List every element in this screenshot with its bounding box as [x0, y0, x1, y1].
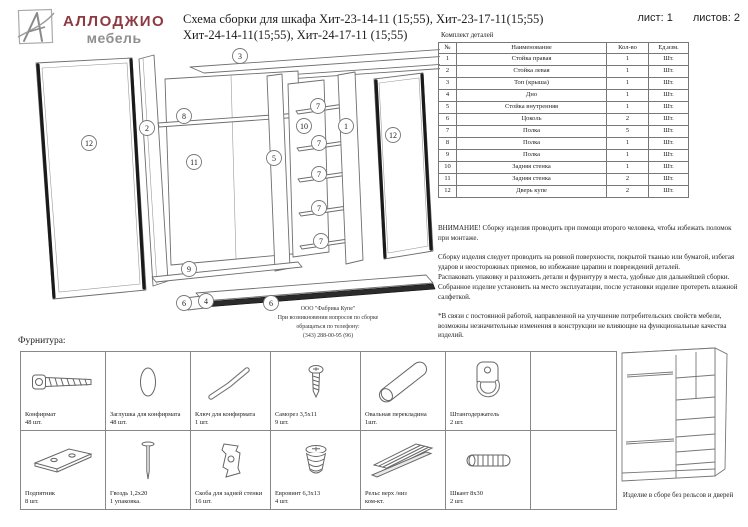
hardware-item-qty: 1 упаковка. [110, 498, 141, 505]
table-row: 5Стойка внутренняя1Шт. [439, 102, 689, 114]
hardware-item-label: Евровинт 6,3х13 [275, 490, 358, 497]
table-row: 10Задняя стенка1Шт. [439, 162, 689, 174]
column-header-number: № [439, 43, 457, 54]
svg-text:10: 10 [300, 122, 308, 131]
hardware-item-qty: 1 шт. [195, 419, 209, 426]
part-number: 5 [439, 102, 457, 114]
svg-text:9: 9 [187, 265, 191, 274]
part-qty: 1 [607, 138, 649, 150]
part-number: 1 [439, 54, 457, 66]
hardware-item-label: Заглушка для конфирмата [110, 411, 188, 418]
column-header-unit: Ед.изм. [649, 43, 689, 54]
parts-table-title: Комплект деталей [441, 32, 493, 39]
svg-text:2: 2 [145, 124, 149, 133]
sheet-info: лист: 1 листов: 2 [637, 12, 740, 24]
part-callout-11: 11 [187, 155, 202, 170]
exploded-diagram: 3122811951077777112646 [10, 40, 440, 340]
part-qty: 1 [607, 66, 649, 78]
confirmat-cap-icon [106, 357, 190, 407]
part-callout-7: 7 [312, 167, 327, 182]
part-name: Полка [457, 138, 607, 150]
rod-holder-icon [446, 357, 530, 407]
table-row: 12Дверь купе2Шт. [439, 186, 689, 198]
column-header-qty: Кол-во [607, 43, 649, 54]
svg-text:1: 1 [344, 122, 348, 131]
part-callout-4: 4 [199, 294, 214, 309]
svg-text:11: 11 [190, 158, 198, 167]
part-qty: 1 [607, 78, 649, 90]
part-name: Стойка левая [457, 66, 607, 78]
svg-text:12: 12 [85, 139, 93, 148]
svg-text:7: 7 [317, 170, 321, 179]
dowel-icon [446, 436, 530, 486]
part-callout-9: 9 [182, 262, 197, 277]
parts-table-body: 1Стойка правая1Шт.2Стойка левая1Шт.3Топ … [439, 54, 689, 198]
part-qty: 2 [607, 174, 649, 186]
hardware-item: Евровинт 6,3х134 шт. [271, 431, 361, 510]
hardware-item-label: Скоба для задней стенки [195, 490, 268, 497]
foot-pad-icon [21, 436, 105, 486]
table-row: 7Полка5Шт. [439, 126, 689, 138]
part-name: Задняя стенка [457, 162, 607, 174]
part-callout-7: 7 [311, 99, 326, 114]
table-row: 3Топ (крыша)1Шт. [439, 78, 689, 90]
part-callout-6: 6 [177, 296, 192, 311]
hardware-item-qty: 2 шт. [450, 419, 464, 426]
part-number: 9 [439, 150, 457, 162]
part-number: 6 [439, 114, 457, 126]
assembly-notices: ВНИМАНИЕ! Сборку изделия проводить при п… [438, 224, 740, 350]
part-unit: Шт. [649, 54, 689, 66]
hardware-item-label: Конфирмат [25, 411, 103, 418]
part-callout-7: 7 [312, 201, 327, 216]
svg-text:8: 8 [182, 112, 186, 121]
svg-text:12: 12 [389, 131, 397, 140]
hardware-item-qty: 1шт. [365, 419, 377, 426]
hardware-item: Скоба для задней стенки16 шт. [191, 431, 271, 510]
euro-screw-icon [271, 436, 360, 486]
table-row: 1Стойка правая1Шт. [439, 54, 689, 66]
hardware-item: Конфирмат48 шт. [21, 352, 106, 431]
rail-icon [361, 436, 445, 486]
part-name: Дно [457, 90, 607, 102]
part-name: Полка [457, 126, 607, 138]
svg-text:3: 3 [238, 52, 242, 61]
svg-text:5: 5 [272, 154, 276, 163]
part-callout-7: 7 [312, 136, 327, 151]
svg-text:6: 6 [182, 299, 186, 308]
hardware-item-label: Саморез 3,5х11 [275, 411, 358, 418]
small-screw-icon [271, 357, 360, 407]
part-callout-1: 1 [339, 119, 354, 134]
nail-icon [106, 436, 190, 486]
part-qty: 1 [607, 90, 649, 102]
hardware-item: Гвоздь 1,2х201 упаковка. [106, 431, 191, 510]
hardware-grid: Конфирмат48 шт.Заглушка для конфирмата48… [20, 351, 617, 510]
hardware-item-label: Ключ для конфирмата [195, 411, 268, 418]
hardware-item-label: Овальная перекладина [365, 411, 443, 418]
hardware-item-qty: 8 шт. [25, 498, 39, 505]
part-number: 3 [439, 78, 457, 90]
hardware-item: Шкант 8х302 шт. [446, 431, 531, 510]
part-name: Топ (крыша) [457, 78, 607, 90]
part-number: 11 [439, 174, 457, 186]
part-callout-10: 10 [297, 119, 312, 134]
part-name: Задняя стенка [457, 174, 607, 186]
part-number: 4 [439, 90, 457, 102]
hardware-section-title: Фурнитура: [18, 336, 66, 346]
part-qty: 1 [607, 150, 649, 162]
table-row: 8Полка1Шт. [439, 138, 689, 150]
hardware-item: Рельс верх /низком-кт. [361, 431, 446, 510]
part-callout-2: 2 [140, 121, 155, 136]
part-unit: Шт. [649, 90, 689, 102]
part-callout-5: 5 [267, 151, 282, 166]
part-name: Полка [457, 150, 607, 162]
hardware-item-qty: 2 шт. [450, 498, 464, 505]
svg-text:4: 4 [204, 297, 208, 306]
hardware-empty-cell [531, 431, 617, 510]
part-name: Цоколь [457, 114, 607, 126]
part-unit: Шт. [649, 66, 689, 78]
manufacturer-contact: ООО "Фабрика Купе" При возникновении воп… [238, 305, 418, 340]
hardware-item-qty: ком-кт. [365, 498, 384, 505]
hardware-item-qty: 4 шт. [275, 498, 289, 505]
hardware-item-label: Гвоздь 1,2х20 [110, 490, 188, 497]
hardware-item: Овальная перекладина1шт. [361, 352, 446, 431]
part-number: 2 [439, 66, 457, 78]
hardware-item-label: Подпятник [25, 490, 103, 497]
table-row: 2Стойка левая1Шт. [439, 66, 689, 78]
column-header-name: Наименование [457, 43, 607, 54]
parts-table-header: № Наименование Кол-во Ед.изм. [439, 43, 689, 54]
part-unit: Шт. [649, 126, 689, 138]
svg-text:7: 7 [317, 139, 321, 148]
svg-text:7: 7 [316, 102, 320, 111]
part-unit: Шт. [649, 150, 689, 162]
hardware-empty-cell [531, 352, 617, 431]
brand-name: АЛЛОДЖИО [63, 13, 165, 30]
part-unit: Шт. [649, 174, 689, 186]
warning-notice: ВНИМАНИЕ! Сборку изделия проводить при п… [438, 224, 740, 244]
hardware-item: Саморез 3,5х119 шт. [271, 352, 361, 431]
part-qty: 1 [607, 102, 649, 114]
part-name: Стойка внутренняя [457, 102, 607, 114]
sheet-number: лист: 1 [637, 12, 672, 24]
hardware-item: Подпятник8 шт. [21, 431, 106, 510]
hardware-item-qty: 48 шт. [25, 419, 42, 426]
confirmat-screw-icon [21, 357, 105, 407]
part-callout-12: 12 [82, 136, 97, 151]
table-row: 9Полка1Шт. [439, 150, 689, 162]
part-callout-12: 12 [386, 128, 401, 143]
assembled-wardrobe-caption: Изделие в сборе без рельсов и дверей [608, 492, 748, 499]
part-unit: Шт. [649, 102, 689, 114]
part-qty: 1 [607, 162, 649, 174]
part-number: 10 [439, 162, 457, 174]
svg-text:7: 7 [319, 237, 323, 246]
oval-tube-icon [361, 357, 445, 407]
part-callout-7: 7 [314, 234, 329, 249]
part-unit: Шт. [649, 114, 689, 126]
hardware-item-qty: 9 шт. [275, 419, 289, 426]
assembled-wardrobe-drawing [614, 344, 748, 494]
svg-text:7: 7 [317, 204, 321, 213]
table-row: 11Задняя стенка2Шт. [439, 174, 689, 186]
hardware-item: Ключ для конфирмата1 шт. [191, 352, 271, 431]
hardware-item-qty: 48 шт. [110, 419, 127, 426]
disclaimer-notice: *В связи с постоянной работой, направлен… [438, 312, 740, 342]
hardware-item: Заглушка для конфирмата48 шт. [106, 352, 191, 431]
part-number: 7 [439, 126, 457, 138]
table-row: 4Дно1Шт. [439, 90, 689, 102]
part-unit: Шт. [649, 162, 689, 174]
part-unit: Шт. [649, 186, 689, 198]
parts-table: № Наименование Кол-во Ед.изм. 1Стойка пр… [438, 42, 689, 198]
part-name: Дверь купе [457, 186, 607, 198]
table-row: 6Цоколь2Шт. [439, 114, 689, 126]
assembly-notice: Сборку изделия следует проводить на ровн… [438, 253, 740, 303]
part-callout-3: 3 [233, 49, 248, 64]
hardware-item-label: Шкант 8х30 [450, 490, 528, 497]
title-line-1: Схема сборки для шкафа Хит-23-14-11 (15;… [183, 11, 593, 27]
part-callout-8: 8 [177, 109, 192, 124]
hardware-item-label: Рельс верх /низ [365, 490, 443, 497]
part-qty: 2 [607, 186, 649, 198]
hardware-item: Штангодержатель2 шт. [446, 352, 531, 431]
part-unit: Шт. [649, 78, 689, 90]
hex-key-icon [191, 357, 270, 407]
part-name: Стойка правая [457, 54, 607, 66]
back-panel-clip-icon [191, 436, 270, 486]
part-number: 8 [439, 138, 457, 150]
part-qty: 2 [607, 114, 649, 126]
page-title: Схема сборки для шкафа Хит-23-14-11 (15;… [183, 11, 593, 44]
part-number: 12 [439, 186, 457, 198]
hardware-item-qty: 16 шт. [195, 498, 212, 505]
part-unit: Шт. [649, 138, 689, 150]
part-qty: 1 [607, 54, 649, 66]
hardware-item-label: Штангодержатель [450, 411, 528, 418]
assembly-instruction-sheet: АЛЛОДЖИО мебель Схема сборки для шкафа Х… [0, 0, 748, 527]
part-qty: 5 [607, 126, 649, 138]
sheets-total: листов: 2 [693, 12, 740, 24]
